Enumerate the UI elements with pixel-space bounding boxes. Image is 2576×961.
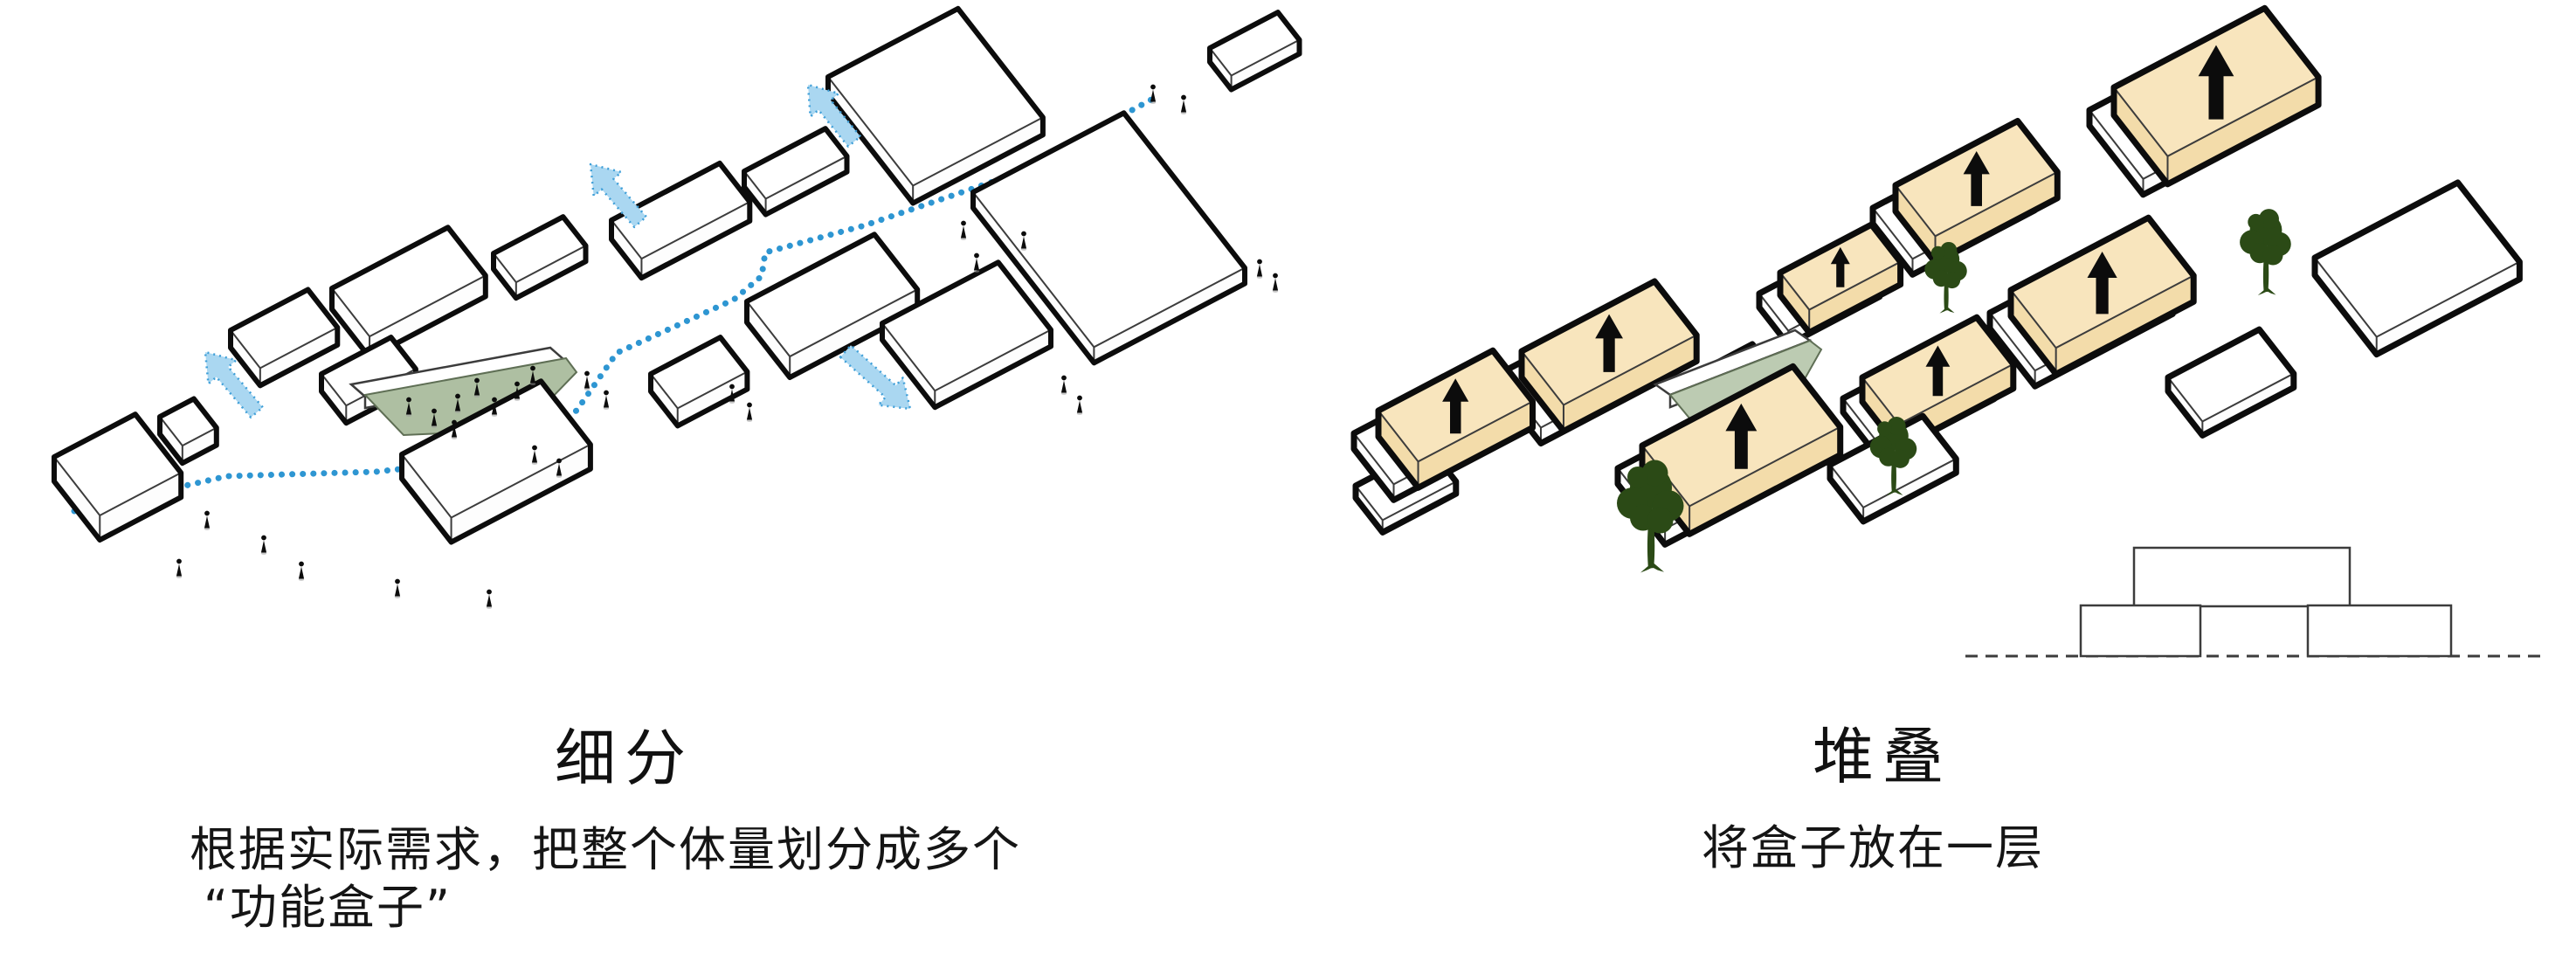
building-box [1210, 12, 1300, 89]
function-box [2114, 8, 2318, 184]
building-box [494, 217, 586, 298]
person-icon [974, 253, 979, 273]
building-box [332, 227, 486, 357]
person-icon [1150, 85, 1156, 104]
person-icon [1061, 376, 1067, 395]
left-panel-title: 细分 [406, 709, 843, 798]
person-icon [176, 559, 182, 578]
building-box [651, 337, 747, 425]
person-icon [487, 590, 492, 609]
person-icon [961, 221, 966, 240]
person-icon [1077, 396, 1082, 415]
person-icon [604, 391, 609, 410]
function-box [1780, 225, 1901, 333]
stacking-elevation-diagram [1965, 548, 2542, 656]
person-icon [395, 579, 400, 598]
stacking-diagram [1354, 8, 2542, 656]
left-panel-description-line2: “功能盒子” [204, 868, 452, 937]
tree-icon [2240, 209, 2291, 295]
person-icon [1181, 95, 1186, 114]
right-panel-description-line1: 将盒子放在一层 [1702, 809, 2044, 878]
building-box [2315, 183, 2519, 355]
person-icon [1257, 259, 1262, 279]
building-box [2168, 329, 2294, 435]
right-panel-title: 堆叠 [1664, 708, 2101, 796]
function-box [1378, 350, 1533, 487]
function-box [2011, 218, 2193, 374]
person-icon [747, 403, 752, 422]
subdivision-diagram [54, 9, 1300, 609]
elevation-box [2134, 548, 2350, 606]
function-box [1896, 121, 2057, 263]
elevation-box [2081, 605, 2200, 656]
person-icon [261, 536, 266, 555]
elevation-box [2308, 605, 2451, 656]
person-icon [1273, 273, 1278, 293]
function-box [1522, 281, 1696, 432]
person-icon [204, 511, 210, 530]
person-icon [584, 371, 590, 391]
diagram-canvas: 细分 根据实际需求，把整个体量划分成多个 “功能盒子” 堆叠 将盒子放在一层 [0, 0, 2576, 961]
building-box [744, 128, 847, 214]
person-icon [299, 562, 304, 581]
